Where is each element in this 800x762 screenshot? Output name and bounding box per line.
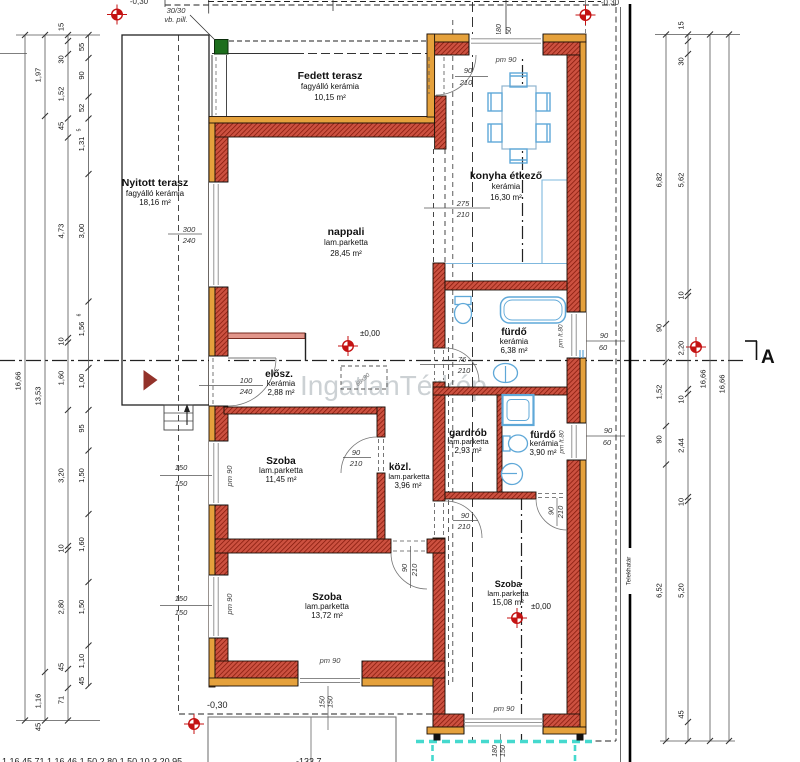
svg-text:lam.parketta: lam.parketta	[259, 466, 304, 475]
svg-text:6,52: 6,52	[655, 583, 664, 598]
svg-text:240: 240	[182, 236, 196, 245]
svg-text:2,93 m²: 2,93 m²	[454, 446, 481, 455]
svg-text:lam.parketta: lam.parketta	[487, 589, 529, 598]
svg-text:2,88 m²: 2,88 m²	[267, 388, 294, 397]
svg-text:1,60: 1,60	[77, 537, 86, 552]
svg-text:90: 90	[655, 324, 664, 332]
svg-text:-133,7: -133,7	[296, 757, 322, 762]
svg-text:1,16: 1,16	[34, 694, 43, 709]
svg-text:1,52: 1,52	[655, 385, 664, 400]
svg-text:1,10: 1,10	[77, 654, 86, 669]
svg-text:16,66: 16,66	[14, 372, 23, 391]
svg-text:lam.parketta: lam.parketta	[324, 238, 369, 247]
svg-text:210: 210	[556, 505, 565, 519]
svg-text:150: 150	[175, 479, 188, 488]
svg-text:3,20: 3,20	[57, 468, 66, 483]
svg-text:5,62: 5,62	[677, 173, 686, 188]
svg-text:275: 275	[456, 199, 470, 208]
svg-text:lam.parketta: lam.parketta	[305, 602, 350, 611]
svg-text:210: 210	[459, 78, 473, 87]
svg-text:71: 71	[57, 696, 66, 704]
svg-text:150: 150	[175, 608, 188, 617]
svg-text:16,30 m²: 16,30 m²	[490, 193, 522, 202]
svg-text:kerámia: kerámia	[500, 337, 529, 346]
svg-text:10: 10	[677, 498, 686, 506]
svg-text:28,45 m²: 28,45 m²	[330, 249, 362, 258]
svg-text:76: 76	[458, 355, 467, 364]
svg-text:1,52: 1,52	[57, 87, 66, 102]
svg-text:-0,30: -0,30	[601, 0, 620, 7]
svg-text:-0,30: -0,30	[207, 700, 228, 710]
svg-text:5: 5	[77, 128, 83, 131]
svg-text:5,20: 5,20	[677, 583, 686, 598]
svg-text:Nyitott terasz: Nyitott terasz	[122, 177, 189, 189]
svg-text:6,82: 6,82	[655, 173, 664, 188]
svg-text:kerámia: kerámia	[267, 379, 296, 388]
svg-text:-0,30: -0,30	[130, 0, 149, 6]
svg-text:90: 90	[77, 71, 86, 79]
svg-text:kerámia: kerámia	[530, 439, 559, 448]
svg-text:1,31: 1,31	[77, 137, 86, 152]
svg-text:90: 90	[655, 435, 664, 443]
svg-text:150: 150	[500, 745, 507, 757]
svg-text:±0,00: ±0,00	[531, 602, 552, 611]
svg-text:6: 6	[77, 313, 83, 316]
svg-text:1,60: 1,60	[57, 371, 66, 386]
svg-text:fagyálló kerámia: fagyálló kerámia	[301, 82, 360, 91]
svg-text:150: 150	[328, 696, 335, 708]
svg-text:nappali: nappali	[328, 226, 365, 238]
svg-text:10,15 m²: 10,15 m²	[314, 93, 346, 102]
svg-text:52: 52	[77, 104, 86, 112]
svg-text:16,66: 16,66	[718, 375, 727, 394]
svg-text:45: 45	[677, 710, 686, 718]
svg-text:45: 45	[34, 723, 43, 731]
svg-text:±0,00: ±0,00	[360, 329, 381, 338]
svg-text:fagyálló kerámia: fagyálló kerámia	[126, 189, 185, 198]
svg-text:konyha étkező: konyha étkező	[470, 170, 542, 182]
svg-text:100: 100	[240, 376, 253, 385]
svg-text:45: 45	[57, 122, 66, 130]
svg-text:pm 90: pm 90	[225, 593, 234, 616]
svg-text:pm 90: pm 90	[495, 55, 518, 64]
svg-text:45: 45	[57, 663, 66, 671]
svg-text:90: 90	[547, 506, 556, 515]
svg-text:vb. pill.: vb. pill.	[164, 15, 187, 24]
svg-text:3,90 m²: 3,90 m²	[529, 448, 556, 457]
svg-text:15,08 m²: 15,08 m²	[492, 598, 524, 607]
svg-text:18,16 m²: 18,16 m²	[139, 198, 171, 207]
svg-text:210: 210	[457, 522, 471, 531]
svg-text:210: 210	[349, 459, 363, 468]
svg-text:210: 210	[456, 210, 470, 219]
svg-text:90: 90	[464, 66, 473, 75]
svg-text:6,38 m²: 6,38 m²	[500, 346, 527, 355]
svg-text:1,50: 1,50	[77, 600, 86, 615]
svg-text:1,16 45 71 1,16 46 1,50: 1,16 45 71 1,16 46 1,50 2,80 1,50 10 3,2…	[2, 757, 182, 762]
svg-text:150: 150	[320, 696, 327, 708]
svg-text:1,56: 1,56	[77, 322, 86, 337]
svg-text:210: 210	[457, 366, 471, 375]
svg-text:4,73: 4,73	[57, 224, 66, 239]
svg-text:10: 10	[57, 544, 66, 552]
svg-text:A: A	[761, 347, 775, 368]
svg-text:Fedett terasz: Fedett terasz	[298, 70, 363, 82]
svg-text:150: 150	[175, 463, 188, 472]
svg-text:45: 45	[77, 677, 86, 685]
svg-text:210: 210	[410, 563, 419, 577]
svg-text:Telekhatár: Telekhatár	[626, 557, 633, 586]
svg-text:90: 90	[604, 426, 613, 435]
svg-text:1,97: 1,97	[34, 68, 43, 83]
svg-text:150: 150	[175, 594, 188, 603]
svg-text:300: 300	[183, 225, 196, 234]
svg-text:pm 90: pm 90	[225, 465, 234, 488]
svg-text:180: 180	[492, 745, 499, 757]
svg-text:10: 10	[57, 337, 66, 345]
svg-text:90: 90	[352, 448, 361, 457]
svg-text:30: 30	[677, 57, 686, 65]
svg-text:3,96 m²: 3,96 m²	[394, 481, 421, 490]
svg-text:pm lt.80: pm lt.80	[559, 430, 566, 455]
svg-text:pm 90: pm 90	[319, 656, 342, 665]
svg-text:10: 10	[677, 395, 686, 403]
svg-text:kerámia: kerámia	[492, 182, 521, 191]
svg-text:pm 90: pm 90	[493, 704, 516, 713]
svg-text:pm lt.80: pm lt.80	[558, 324, 565, 349]
svg-text:90: 90	[461, 511, 470, 520]
svg-text:15: 15	[57, 23, 66, 31]
svg-text:240: 240	[239, 387, 253, 396]
svg-text:30: 30	[57, 55, 66, 63]
svg-text:90: 90	[400, 563, 409, 572]
svg-text:11,45 m²: 11,45 m²	[266, 475, 297, 484]
svg-text:Szoba: Szoba	[495, 579, 522, 589]
svg-text:lam.parketta: lam.parketta	[447, 437, 489, 446]
svg-text:55: 55	[77, 43, 86, 51]
svg-text:10: 10	[677, 291, 686, 299]
svg-text:13,72 m²: 13,72 m²	[311, 611, 343, 620]
svg-text:1,50: 1,50	[77, 468, 86, 483]
svg-text:lam.parketta: lam.parketta	[388, 472, 430, 481]
svg-text:16,66: 16,66	[699, 370, 708, 389]
svg-text:2,80: 2,80	[57, 600, 66, 615]
svg-text:95: 95	[77, 424, 86, 432]
svg-text:15: 15	[677, 21, 686, 29]
svg-text:30/30: 30/30	[167, 6, 187, 15]
svg-text:13,53: 13,53	[34, 387, 43, 406]
svg-text:2,20: 2,20	[677, 341, 686, 356]
svg-text:1,00: 1,00	[77, 374, 86, 389]
svg-text:90: 90	[600, 331, 609, 340]
svg-text:3,00: 3,00	[77, 224, 86, 239]
svg-text:2,44: 2,44	[677, 438, 686, 453]
svg-text:60: 60	[599, 343, 608, 352]
svg-text:60: 60	[603, 438, 612, 447]
